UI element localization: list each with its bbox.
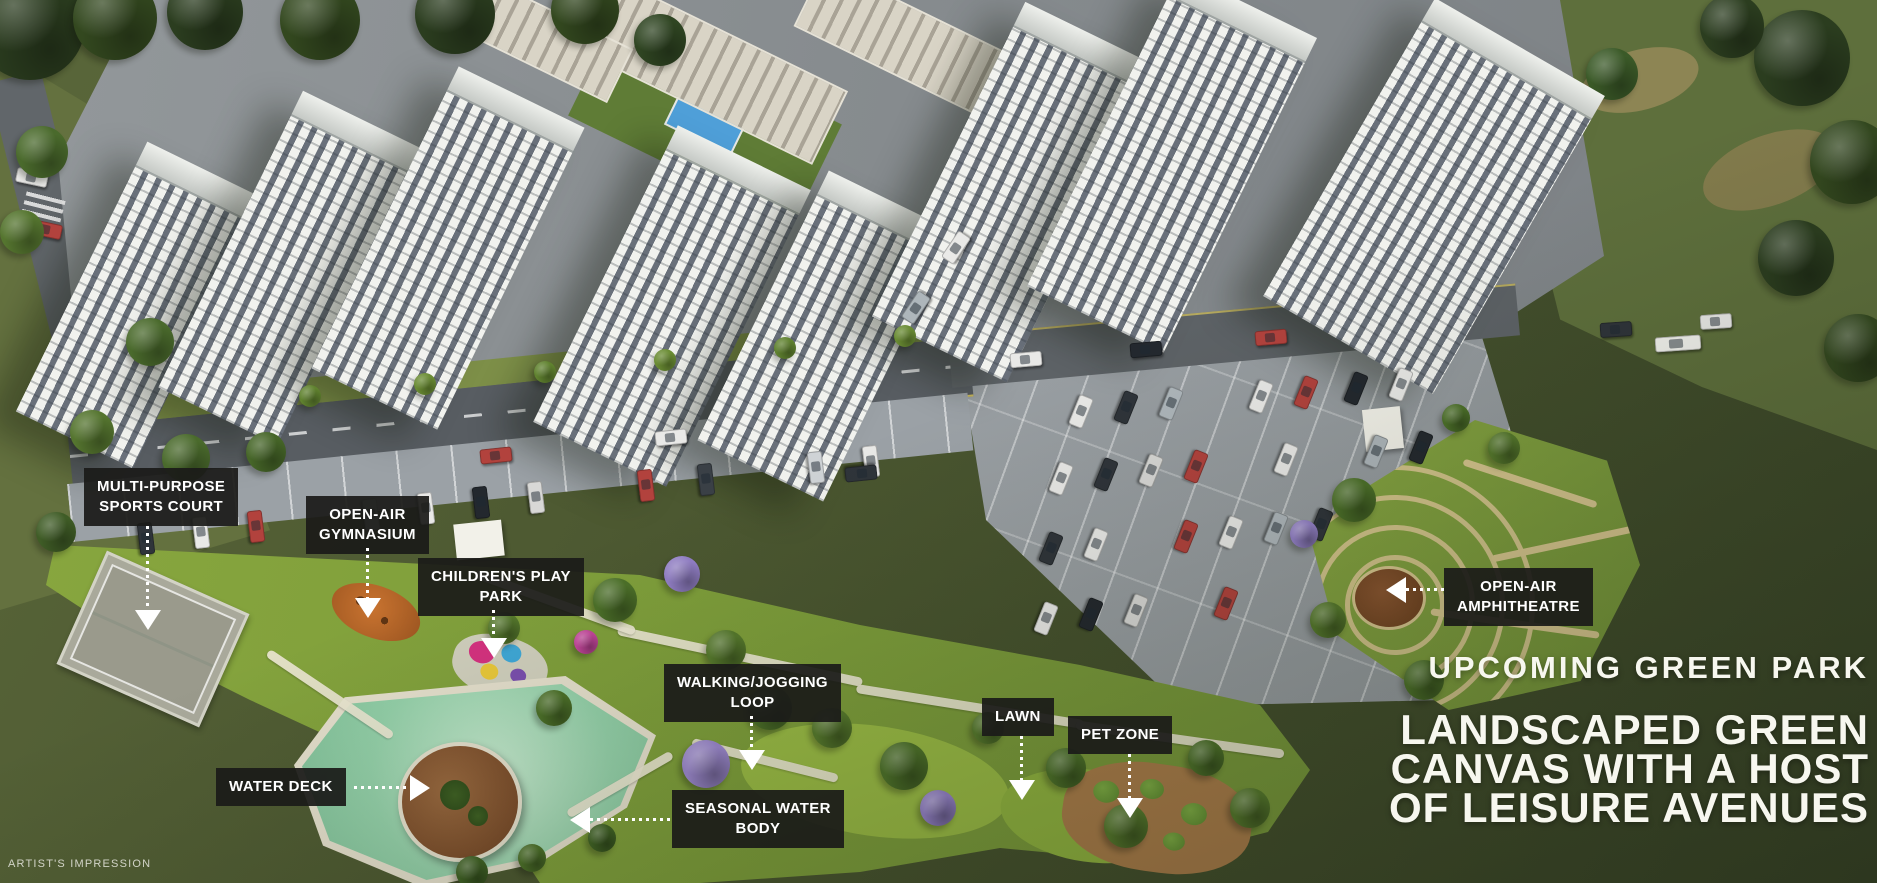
car-windshield (1040, 611, 1052, 623)
tree (574, 630, 598, 654)
headline-eyebrow: UPCOMING GREEN PARK (1389, 650, 1869, 686)
tree (1488, 432, 1520, 464)
leader-line (354, 786, 410, 789)
car-windshield (811, 461, 821, 472)
car-windshield (1395, 377, 1407, 389)
callout-pet-zone: PET ZONE (1068, 716, 1172, 754)
tree (70, 410, 114, 454)
car-windshield (1669, 339, 1684, 349)
callout-water-deck: WATER DECK (216, 768, 346, 806)
car-windshield (1265, 333, 1275, 343)
callout-label: PARK (431, 587, 571, 607)
callout-label: CHILDREN'S PLAY (431, 567, 571, 587)
car-windshield (1610, 325, 1620, 335)
car-windshield (1145, 463, 1157, 475)
leader-line (492, 610, 495, 638)
tree (664, 556, 700, 592)
car-windshield (1165, 396, 1177, 408)
callout-seasonal-water-body: SEASONAL WATER BODY (672, 790, 844, 848)
callout-label: WALKING/JOGGING (677, 673, 828, 693)
car (1129, 341, 1162, 359)
callout-childrens-play-park: CHILDREN'S PLAY PARK (418, 558, 584, 616)
shrub (1162, 831, 1186, 852)
car-windshield (949, 242, 962, 255)
tree (774, 337, 796, 359)
aerial-masterplan-render: MULTI-PURPOSE SPORTS COURT OPEN-AIR GYMN… (0, 0, 1877, 883)
car (1600, 321, 1633, 338)
car (844, 464, 877, 482)
tree (894, 325, 916, 347)
car-windshield (1190, 459, 1202, 471)
tree (414, 373, 436, 395)
car-windshield (251, 520, 261, 531)
palm-tree (440, 780, 470, 810)
tree (0, 0, 85, 80)
callout-open-air-gymnasium: OPEN-AIR GYMNASIUM (306, 496, 429, 554)
tree (1758, 220, 1834, 296)
marketing-headline: UPCOMING GREEN PARK LANDSCAPED GREEN CAN… (1389, 650, 1869, 827)
car (1033, 601, 1059, 636)
car-windshield (1220, 596, 1232, 608)
entrance-kiosk (453, 520, 505, 561)
car-windshield (1225, 525, 1237, 537)
car-windshield (531, 491, 541, 502)
palm-tree (468, 806, 488, 826)
play-equipment (500, 642, 524, 664)
tree (16, 126, 68, 178)
car-windshield (476, 496, 486, 507)
tree (299, 385, 321, 407)
play-equipment (479, 662, 500, 682)
leader-line (590, 818, 670, 821)
callout-label: LAWN (995, 707, 1041, 727)
tree (1754, 10, 1850, 106)
car-windshield (1045, 541, 1057, 553)
car-windshield (1300, 385, 1312, 397)
callout-label: MULTI-PURPOSE (97, 477, 225, 497)
shrub (1179, 801, 1208, 826)
tree (682, 740, 730, 788)
leader-line (1020, 736, 1023, 780)
callout-label: OPEN-AIR (319, 505, 416, 525)
car-windshield (490, 451, 500, 461)
callout-label: SEASONAL WATER (685, 799, 831, 819)
callout-walking-jogging-loop: WALKING/JOGGING LOOP (664, 664, 841, 722)
car-windshield (1020, 355, 1030, 365)
tree (246, 432, 286, 472)
callout-label: PET ZONE (1081, 725, 1159, 745)
tree (1442, 404, 1470, 432)
headline-line: OF LEISURE AVENUES (1389, 788, 1869, 827)
car (1655, 334, 1702, 352)
tree (534, 361, 556, 383)
car (1254, 329, 1287, 347)
car-windshield (1270, 521, 1282, 533)
car-windshield (1100, 467, 1112, 479)
leader-line (1406, 588, 1444, 591)
callout-label: BODY (685, 819, 831, 839)
leader-line (750, 716, 753, 750)
car-windshield (701, 473, 711, 484)
car-windshield (1130, 603, 1142, 615)
car-windshield (1120, 400, 1132, 412)
water-deck-shape (398, 742, 522, 862)
car-windshield (857, 468, 867, 478)
headline-line: LANDSCAPED GREEN (1389, 710, 1869, 749)
leader-line (146, 526, 149, 610)
tree (654, 349, 676, 371)
car (1009, 351, 1042, 369)
tree (880, 742, 928, 790)
car-windshield (1255, 389, 1267, 401)
tree (920, 790, 956, 826)
tree (1230, 788, 1270, 828)
tree (588, 824, 616, 852)
tree (1332, 478, 1376, 522)
tree (1046, 748, 1086, 788)
car-windshield (1415, 440, 1427, 452)
car-windshield (1370, 444, 1382, 456)
artists-impression-note: ARTIST'S IMPRESSION (8, 858, 151, 870)
shrub (1092, 779, 1121, 804)
car-windshield (1085, 607, 1097, 619)
tree (36, 512, 76, 552)
car-windshield (665, 433, 675, 443)
tree (593, 578, 637, 622)
tree (456, 856, 488, 883)
callout-multi-purpose-sports-court: MULTI-PURPOSE SPORTS COURT (84, 468, 238, 526)
car-windshield (196, 526, 206, 537)
tree (634, 14, 686, 66)
car-windshield (1280, 452, 1292, 464)
callout-label: OPEN-AIR (1457, 577, 1580, 597)
shrub (1139, 777, 1166, 800)
callout-label: GYMNASIUM (319, 525, 416, 545)
callout-label: WATER DECK (229, 777, 333, 797)
car-windshield (641, 479, 651, 490)
car-windshield (1710, 317, 1720, 327)
callout-label: SPORTS COURT (97, 497, 225, 517)
tree (1188, 740, 1224, 776)
tree (536, 690, 572, 726)
car-windshield (1350, 381, 1362, 393)
car-windshield (1075, 404, 1087, 416)
car-windshield (1315, 517, 1327, 529)
callout-lawn: LAWN (982, 698, 1054, 736)
tree (518, 844, 546, 872)
car-windshield (1180, 529, 1192, 541)
tree (126, 318, 174, 366)
headline-line: CANVAS WITH A HOST (1389, 749, 1869, 788)
leader-line (1128, 754, 1131, 798)
car-windshield (1140, 345, 1150, 355)
callout-label: AMPHITHEATRE (1457, 597, 1580, 617)
tree (0, 210, 44, 254)
tree (1310, 602, 1346, 638)
car-windshield (909, 302, 922, 315)
callout-label: LOOP (677, 693, 828, 713)
callout-open-air-amphitheatre: OPEN-AIR AMPHITHEATRE (1444, 568, 1593, 626)
car-windshield (1090, 537, 1102, 549)
tree (1290, 520, 1318, 548)
leader-line (366, 548, 369, 598)
amphitheatre-stage (1352, 566, 1426, 630)
car (1700, 313, 1733, 330)
car-windshield (1055, 471, 1067, 483)
